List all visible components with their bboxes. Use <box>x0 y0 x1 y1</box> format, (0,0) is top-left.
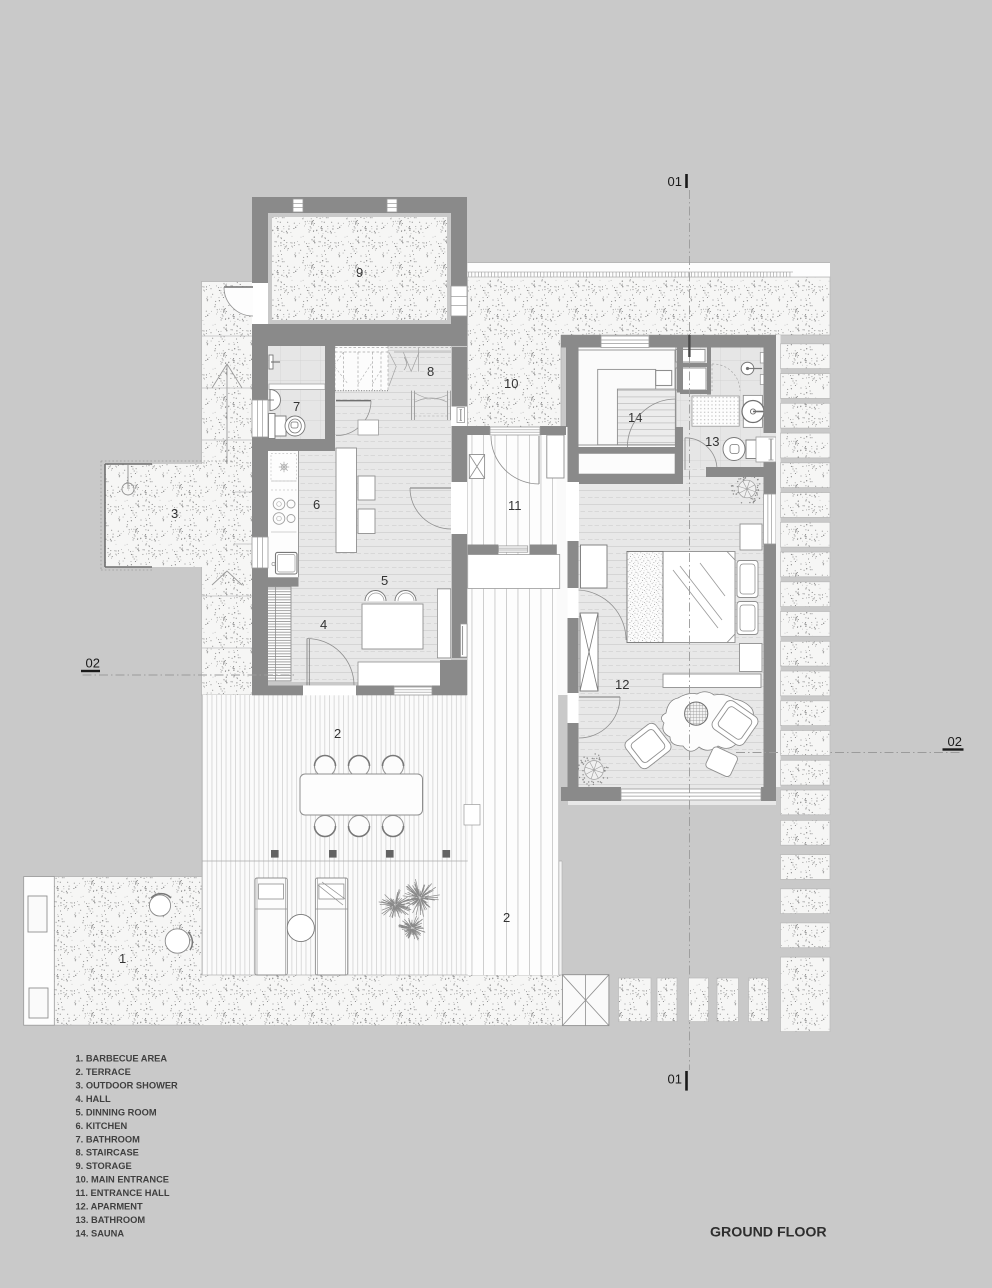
svg-text:GROUND FLOOR: GROUND FLOOR <box>710 1225 827 1241</box>
svg-text:9: 9 <box>356 265 363 280</box>
svg-text:9. STORAGE: 9. STORAGE <box>76 1161 132 1171</box>
svg-text:13. BATHROOM: 13. BATHROOM <box>76 1215 146 1225</box>
svg-text:12. APARMENT: 12. APARMENT <box>76 1202 143 1212</box>
svg-text:7: 7 <box>293 399 300 414</box>
svg-text:3. OUTDOOR SHOWER: 3. OUTDOOR SHOWER <box>76 1080 179 1090</box>
svg-text:5. DINNING ROOM: 5. DINNING ROOM <box>76 1107 157 1117</box>
svg-text:8. STAIRCASE: 8. STAIRCASE <box>76 1148 139 1158</box>
svg-text:6. KITCHEN: 6. KITCHEN <box>76 1121 128 1131</box>
svg-text:4: 4 <box>320 617 327 632</box>
svg-text:1: 1 <box>119 951 126 966</box>
svg-text:7. BATHROOM: 7. BATHROOM <box>76 1134 141 1144</box>
svg-text:14. SAUNA: 14. SAUNA <box>76 1228 125 1238</box>
svg-text:4. HALL: 4. HALL <box>76 1094 111 1104</box>
svg-text:12: 12 <box>615 677 629 692</box>
svg-text:10: 10 <box>504 376 518 391</box>
svg-text:01: 01 <box>668 174 682 189</box>
svg-text:2: 2 <box>503 910 510 925</box>
svg-text:2: 2 <box>334 726 341 741</box>
svg-text:6: 6 <box>313 497 320 512</box>
svg-text:14: 14 <box>628 410 642 425</box>
svg-text:3: 3 <box>171 506 178 521</box>
svg-text:11: 11 <box>508 498 522 513</box>
svg-text:02: 02 <box>948 734 962 749</box>
svg-text:2. TERRACE: 2. TERRACE <box>76 1067 131 1077</box>
svg-text:1. BARBECUE AREA: 1. BARBECUE AREA <box>76 1054 168 1064</box>
svg-text:01: 01 <box>668 1072 682 1087</box>
svg-text:02: 02 <box>86 656 100 671</box>
svg-text:11. ENTRANCE HALL: 11. ENTRANCE HALL <box>76 1188 170 1198</box>
svg-text:5: 5 <box>381 573 388 588</box>
svg-text:10. MAIN ENTRANCE: 10. MAIN ENTRANCE <box>76 1175 170 1185</box>
svg-text:8: 8 <box>427 364 434 379</box>
